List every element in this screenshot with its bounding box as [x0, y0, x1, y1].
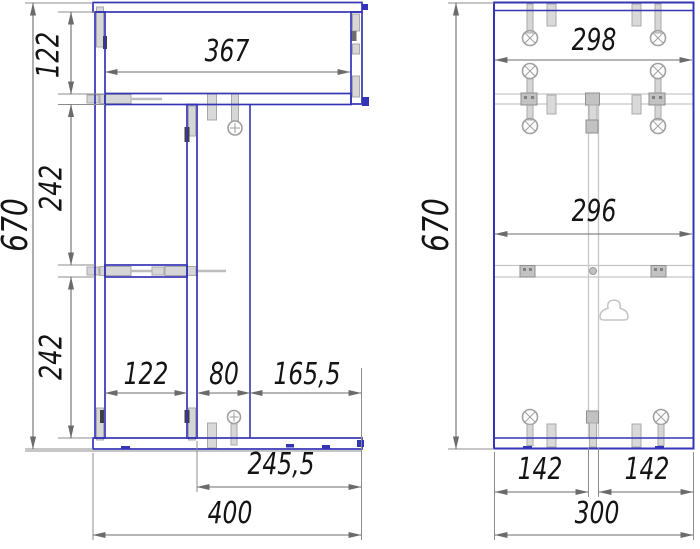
- drawing-linework: [0, 0, 700, 549]
- dim-label-side-total-width: 300: [575, 499, 620, 529]
- dim-label-side-left-offset: 142: [518, 455, 563, 485]
- dowel-icon: [547, 4, 556, 26]
- dowel-icon: [547, 95, 556, 114]
- dowel-icon: [547, 424, 556, 447]
- dim-label-front-top-inner: 367: [205, 37, 250, 67]
- assembly-drawing-canvas: 670 122 242 242 367 122 80 165,5 245,5 4…: [0, 0, 700, 549]
- dowel-icon: [632, 424, 641, 447]
- dowel-icon: [632, 95, 641, 114]
- dim-label-front-total-height: 670: [0, 198, 34, 252]
- dim-label-front-lower-right: 245,5: [248, 450, 315, 480]
- middle-shelf: [105, 265, 187, 277]
- center-partition: [187, 105, 197, 439]
- dim-label-front-bottom-section: 242: [37, 334, 68, 380]
- screw-icon: [655, 4, 661, 33]
- dowel-icon: [632, 4, 641, 26]
- dim-label-front-total-width: 400: [208, 499, 253, 529]
- dim-label-side-total-height: 670: [419, 198, 455, 252]
- dim-label-side-right-offset: 142: [625, 455, 670, 485]
- screw-icon: [527, 425, 533, 446]
- cam-plate-icon: [651, 266, 666, 278]
- screw-icon: [658, 425, 664, 446]
- cam-plate-icon: [649, 93, 665, 105]
- screw-icon: [527, 4, 533, 33]
- cam-plate-icon: [520, 266, 535, 278]
- dim-label-front-right-bay: 165,5: [274, 360, 341, 390]
- keyhole-slot: [600, 300, 628, 320]
- cam-plate-icon: [521, 93, 537, 105]
- left-side-panel: [95, 12, 105, 438]
- dowel-icon: [589, 105, 597, 122]
- top-shelf: [105, 94, 351, 105]
- dim-label-front-top-section: 122: [34, 32, 65, 78]
- dim-label-front-left-bay: 122: [124, 360, 169, 390]
- dim-label-front-mid-section: 242: [37, 165, 68, 211]
- screw-head-icon: [590, 268, 597, 275]
- cam-plate-icon: [586, 93, 600, 105]
- right-side-panel: [351, 12, 362, 104]
- cam-plate-icon: [586, 120, 598, 133]
- bottom-panel: [93, 438, 362, 449]
- dim-label-side-top-inner: 298: [572, 26, 617, 56]
- top-panel: [93, 3, 362, 13]
- dim-label-side-mid-inner: 296: [572, 197, 617, 227]
- screw-icon: [590, 423, 597, 447]
- dim-label-front-center-gap: 80: [209, 360, 239, 390]
- cam-plate-icon: [587, 411, 599, 423]
